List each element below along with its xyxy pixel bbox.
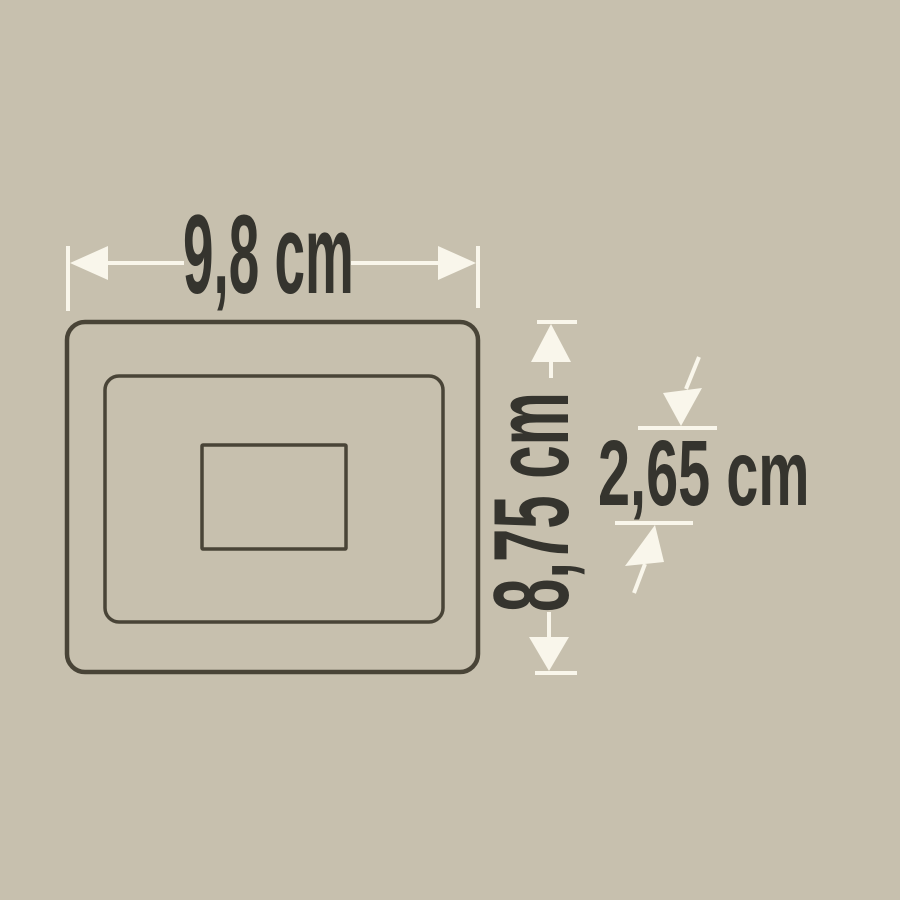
height-dimension: 8,75 cm <box>473 322 591 673</box>
product-middle-frame <box>105 376 443 622</box>
width-dimension: 9,8 cm <box>68 191 478 317</box>
depth-dimension: 2,65 cm <box>598 357 810 593</box>
arrow-up-icon <box>531 324 571 362</box>
arrow-down-diagonal-icon <box>663 388 702 426</box>
depth-dim-bottom-tail <box>634 564 645 593</box>
arrow-down-icon <box>529 637 569 671</box>
depth-dimension-label: 2,65 cm <box>598 422 810 525</box>
depth-dim-top-tail <box>686 357 699 389</box>
height-dimension-label: 8,75 cm <box>473 392 591 612</box>
width-dimension-label: 9,8 cm <box>183 191 354 317</box>
diagram-canvas: 9,8 cm 8,75 cm 2,65 cm <box>0 0 900 900</box>
product-front-view <box>67 322 478 672</box>
product-led-window <box>202 445 346 549</box>
arrow-up-diagonal-icon <box>625 525 664 566</box>
arrow-left-icon <box>70 246 108 280</box>
dimension-diagram: 9,8 cm 8,75 cm 2,65 cm <box>0 0 900 900</box>
arrow-right-icon <box>438 246 476 280</box>
